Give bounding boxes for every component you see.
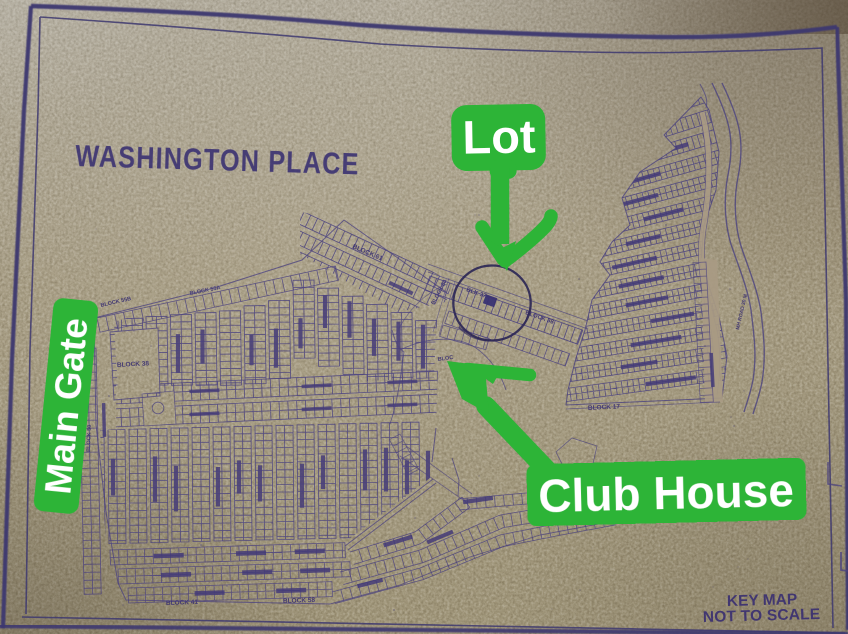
svg-text:Lot: Lot (462, 109, 536, 163)
svg-text:Club House: Club House (538, 464, 795, 522)
svg-text:BLOCK 41: BLOCK 41 (166, 599, 199, 607)
svg-text:BLOCK 50: BLOCK 50 (86, 425, 93, 452)
svg-text:NOT TO SCALE: NOT TO SCALE (703, 606, 821, 626)
